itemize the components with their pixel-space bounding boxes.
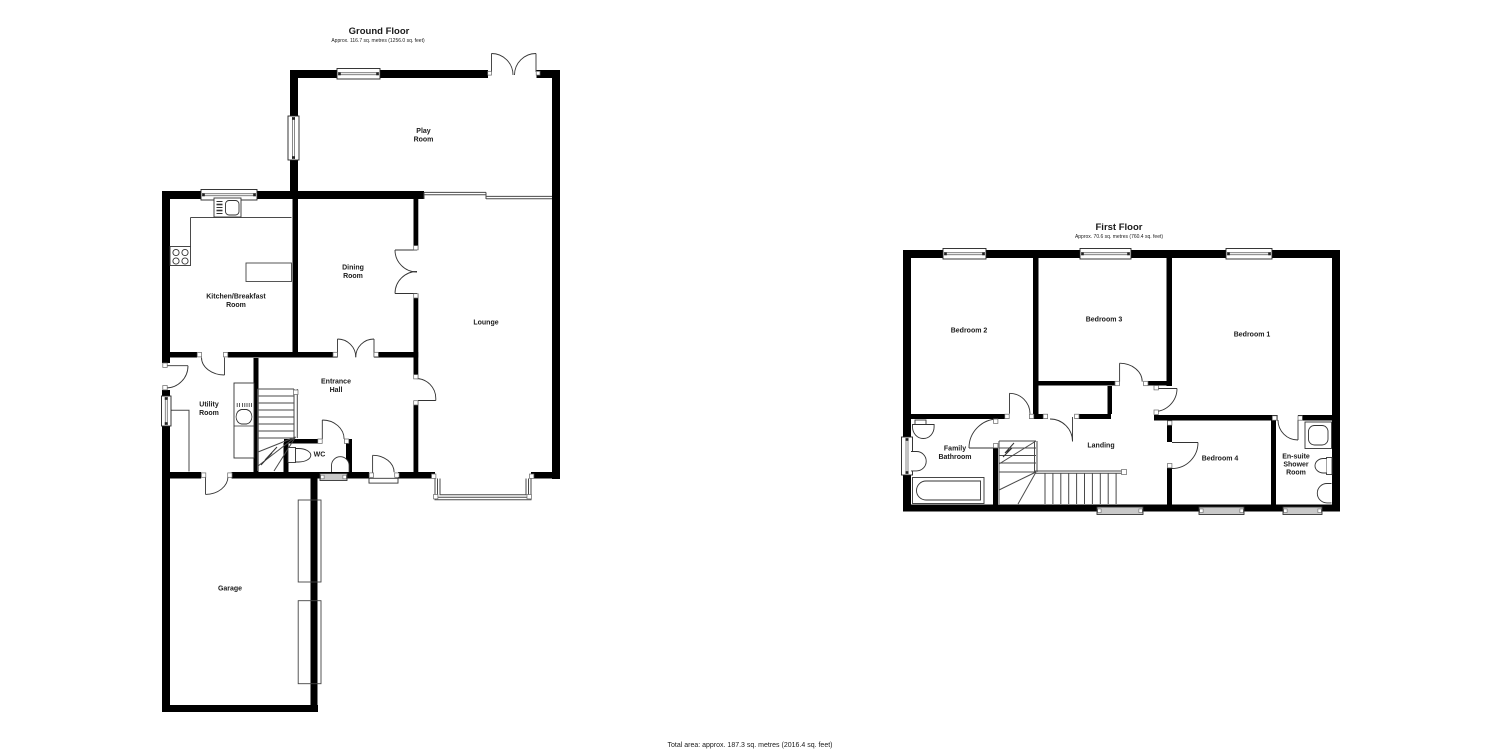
svg-text:Family: Family <box>944 446 966 453</box>
svg-text:Entrance: Entrance <box>321 379 351 386</box>
svg-text:Room: Room <box>343 273 363 280</box>
svg-text:Room: Room <box>226 302 246 309</box>
svg-text:En-suite: En-suite <box>1282 454 1310 461</box>
svg-text:Kitchen/Breakfast: Kitchen/Breakfast <box>206 294 266 301</box>
svg-text:WC: WC <box>314 452 326 459</box>
svg-text:Approx. 70.6 sq. metres (760.4: Approx. 70.6 sq. metres (760.4 sq. feet) <box>1075 234 1163 240</box>
svg-text:Landing: Landing <box>1087 443 1114 450</box>
svg-text:Ground Floor: Ground Floor <box>349 26 410 37</box>
svg-text:Room: Room <box>199 410 219 417</box>
svg-text:Play: Play <box>416 128 431 135</box>
svg-text:Dining: Dining <box>342 265 364 272</box>
svg-text:Bedroom 3: Bedroom 3 <box>1086 317 1123 324</box>
svg-text:First Floor: First Floor <box>1096 222 1143 233</box>
svg-text:Bathroom: Bathroom <box>938 454 971 461</box>
svg-text:Bedroom 2: Bedroom 2 <box>951 328 988 335</box>
svg-text:Bedroom 1: Bedroom 1 <box>1234 332 1271 339</box>
svg-text:Lounge: Lounge <box>473 320 498 327</box>
svg-text:Shower: Shower <box>1283 462 1309 469</box>
svg-text:Hall: Hall <box>330 387 343 394</box>
svg-text:Utility: Utility <box>199 402 219 409</box>
svg-text:Room: Room <box>414 137 434 144</box>
svg-text:Bedroom 4: Bedroom 4 <box>1202 456 1239 463</box>
svg-text:Approx. 116.7 sq. metres (1256: Approx. 116.7 sq. metres (1256.0 sq. fee… <box>331 38 425 44</box>
svg-text:Room: Room <box>1286 470 1306 477</box>
svg-text:Garage: Garage <box>218 586 242 593</box>
svg-text:Total area: approx. 187.3 sq.: Total area: approx. 187.3 sq. metres (20… <box>668 742 833 749</box>
